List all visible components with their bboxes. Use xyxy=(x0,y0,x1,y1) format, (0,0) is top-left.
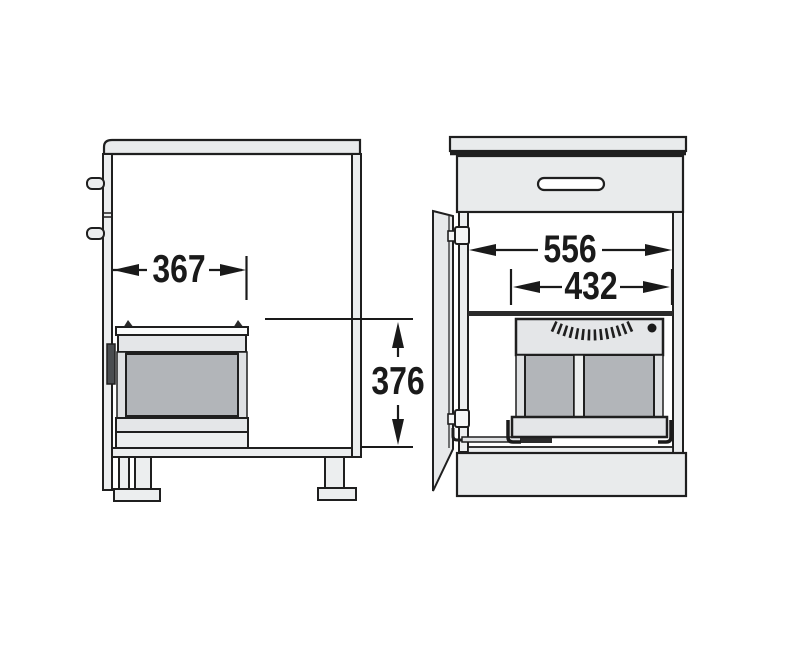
hinge-wall-block xyxy=(455,227,469,244)
dim-432-label: 432 xyxy=(564,264,617,308)
dim-556-arrow-left xyxy=(469,244,496,256)
side-door-mount-bracket xyxy=(107,344,115,384)
dim-367-arrow-left xyxy=(113,264,139,276)
side-bin-base-upper xyxy=(116,418,248,432)
side-door-panel xyxy=(103,154,112,490)
front-lid-button xyxy=(648,324,657,333)
side-bin-lid xyxy=(118,335,246,352)
front-bin-rail-left xyxy=(516,355,525,417)
dimension-432: 432 xyxy=(511,264,672,308)
side-bin-rail-right xyxy=(238,352,247,418)
dim-432-arrow-right xyxy=(643,281,670,293)
front-bin-left xyxy=(525,355,574,417)
side-bottom-panel xyxy=(112,448,352,457)
side-front-leg-bar xyxy=(119,457,129,491)
front-open-door xyxy=(433,211,453,491)
side-back-wall xyxy=(352,154,361,457)
dimension-367: 367 xyxy=(113,247,247,300)
cabinet-dimension-drawing: 367 376 xyxy=(0,0,800,647)
side-front-leg xyxy=(135,457,151,491)
dim-367-label: 367 xyxy=(152,247,205,291)
side-bin-top-rail xyxy=(116,327,248,335)
front-drawer-handle xyxy=(538,178,604,190)
side-hinge-knob-top xyxy=(87,178,104,189)
dim-556-arrow-right xyxy=(645,244,672,256)
front-plinth xyxy=(457,453,686,496)
dim-376-arrow-up xyxy=(392,322,404,348)
side-bin-body xyxy=(126,354,238,416)
hinge-wall-block xyxy=(455,410,469,427)
diagram-canvas: 367 376 xyxy=(0,0,800,647)
front-countertop xyxy=(450,137,686,151)
dim-376-arrow-down xyxy=(392,419,404,445)
side-rear-foot xyxy=(318,488,356,500)
dim-376-label: 376 xyxy=(371,359,424,403)
side-hinge-knob-bottom xyxy=(87,228,104,239)
side-bin-rail-left xyxy=(117,352,126,418)
dim-367-arrow-right xyxy=(220,264,246,276)
front-bin-unit xyxy=(508,319,671,442)
front-bin-divider xyxy=(574,355,584,417)
dimension-376: 376 xyxy=(265,319,425,447)
side-front-foot xyxy=(114,489,160,501)
front-shelf-line xyxy=(468,311,673,316)
dim-432-arrow-left xyxy=(513,281,540,293)
side-rear-leg xyxy=(325,457,344,490)
front-view: 556 432 xyxy=(433,137,686,496)
side-bin-base-lower xyxy=(116,432,248,448)
front-bin-base xyxy=(512,417,667,437)
front-bin-right xyxy=(584,355,654,417)
front-bin-rail-right xyxy=(654,355,663,417)
side-view: 367 376 xyxy=(87,140,425,501)
side-countertop xyxy=(104,140,360,154)
side-bin-unit xyxy=(107,320,248,448)
